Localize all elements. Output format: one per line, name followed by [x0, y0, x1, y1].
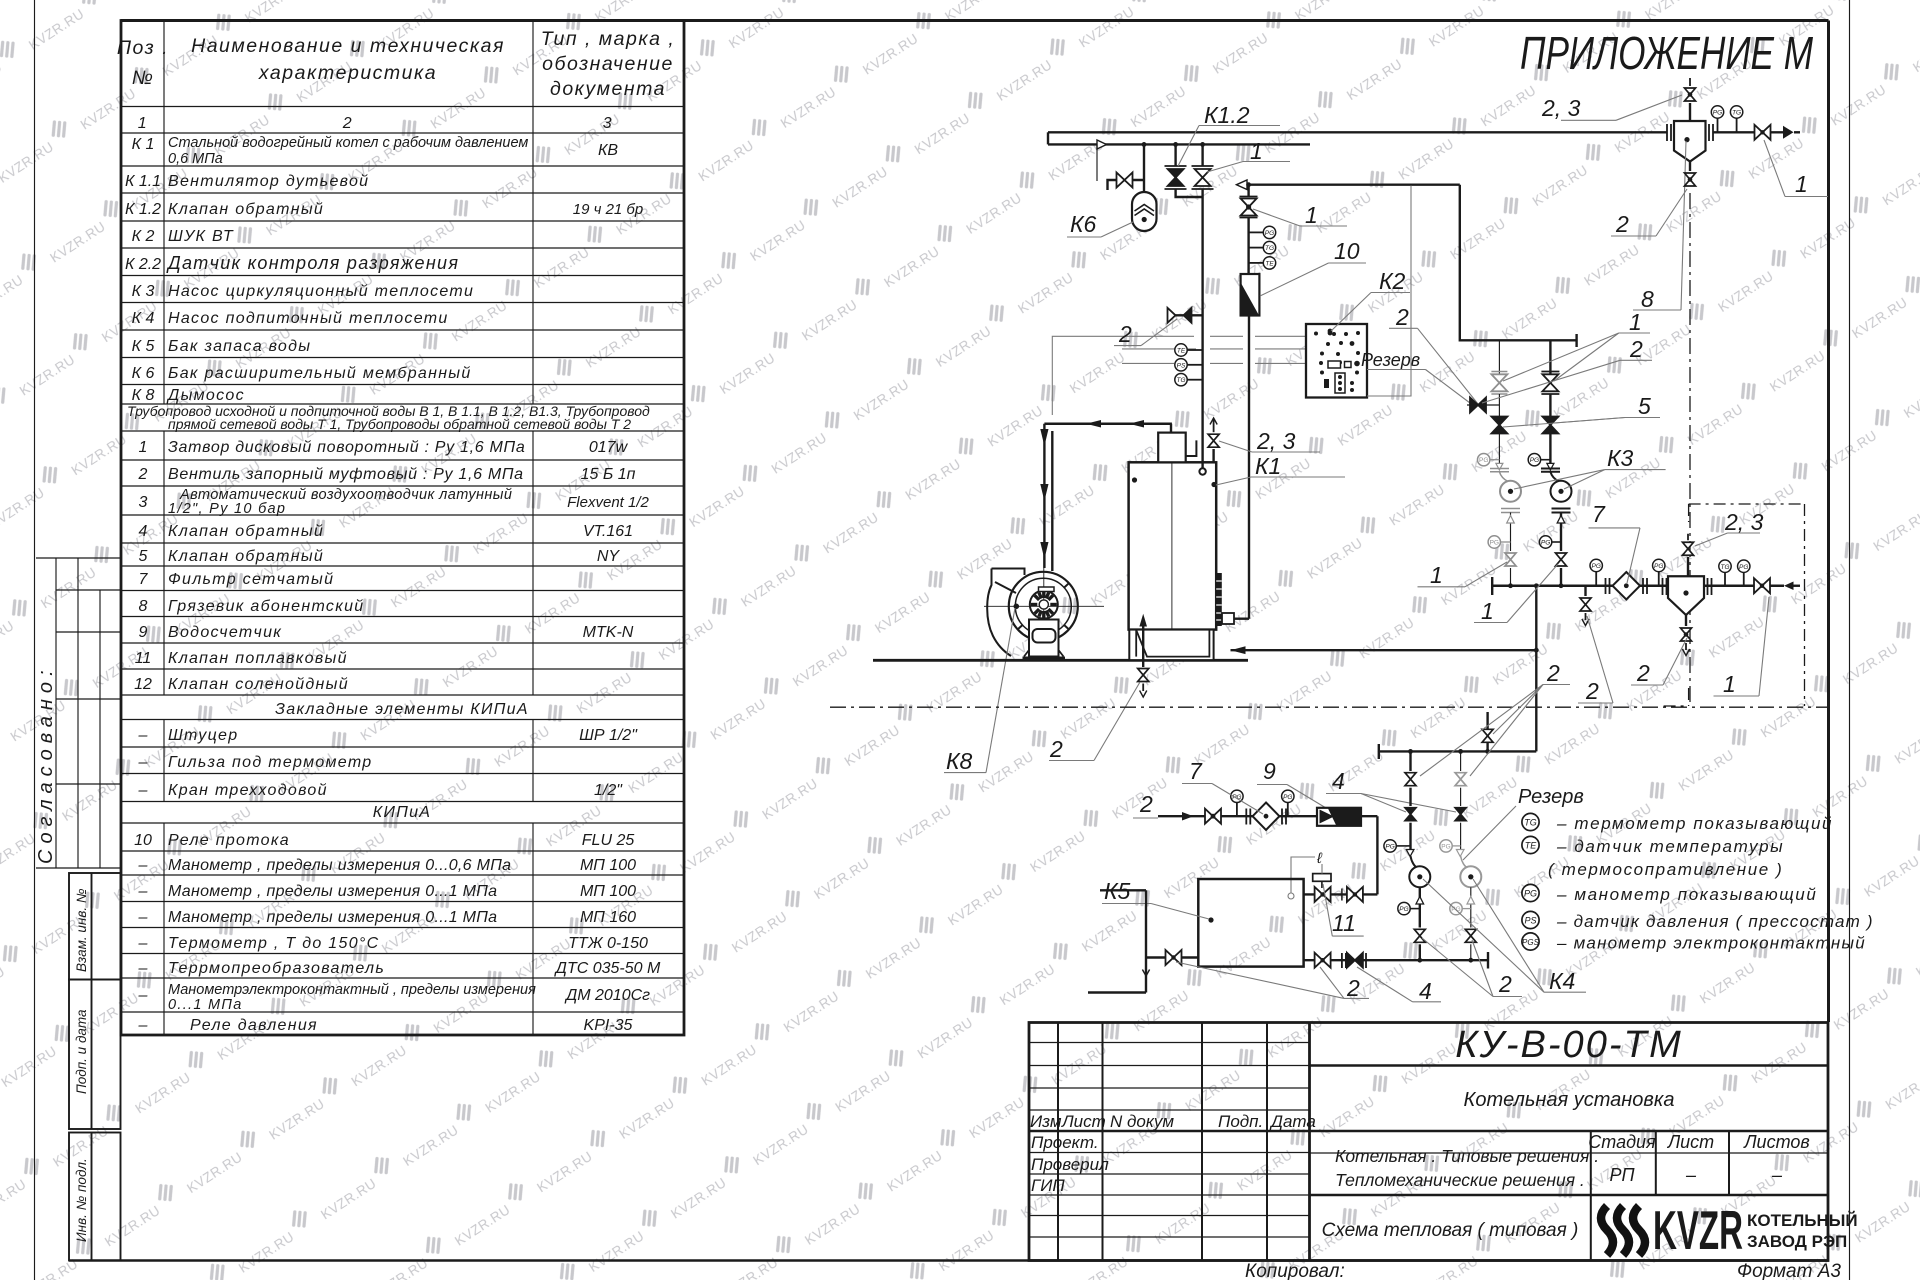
- svg-text:PG: PG: [1713, 110, 1722, 117]
- svg-text:ГИП: ГИП: [1031, 1176, 1065, 1195]
- svg-text:– термометр показывающий: – термометр показывающий: [1556, 814, 1833, 833]
- svg-text:№: №: [132, 67, 155, 89]
- svg-text:1/2": 1/2": [594, 782, 623, 799]
- svg-text:2: 2: [1615, 211, 1629, 237]
- svg-text:1: 1: [1795, 171, 1808, 197]
- svg-text:VT.161: VT.161: [583, 523, 633, 540]
- svg-text:PG: PG: [1479, 457, 1488, 464]
- svg-text:5: 5: [139, 548, 148, 565]
- svg-text:К 1.1: К 1.1: [125, 173, 161, 190]
- svg-text:PG: PG: [1530, 457, 1539, 464]
- svg-text:8: 8: [139, 598, 148, 615]
- svg-text:–: –: [138, 960, 148, 977]
- svg-text:TG: TG: [1265, 245, 1274, 252]
- svg-text:2: 2: [1585, 678, 1599, 704]
- svg-text:Котельная установка: Котельная установка: [1464, 1089, 1675, 1111]
- svg-text:Лист: Лист: [1061, 1112, 1106, 1131]
- svg-text:Вентилятор дутьевой: Вентилятор дутьевой: [168, 173, 369, 190]
- svg-text:PS: PS: [1177, 362, 1186, 369]
- svg-text:0...1 МПа: 0...1 МПа: [168, 997, 243, 1013]
- svg-text:2: 2: [1629, 336, 1643, 362]
- svg-text:Бак запаса воды: Бак запаса воды: [168, 338, 311, 355]
- svg-text:3: 3: [139, 494, 148, 511]
- svg-text:–: –: [138, 883, 148, 900]
- svg-text:К2: К2: [1379, 268, 1406, 294]
- svg-text:7: 7: [139, 571, 149, 588]
- svg-text:PG: PG: [1591, 563, 1600, 570]
- svg-text:2: 2: [1546, 660, 1560, 686]
- svg-text:Датчик контроля разряжения: Датчик контроля разряжения: [166, 253, 459, 273]
- svg-text:К 3: К 3: [132, 283, 155, 300]
- svg-text:PS: PS: [1524, 916, 1536, 926]
- svg-text:–: –: [138, 754, 148, 771]
- svg-text:ПРИЛОЖЕНИЕ М: ПРИЛОЖЕНИЕ М: [1520, 27, 1814, 79]
- svg-text:Взам. инв. №: Взам. инв. №: [74, 888, 89, 972]
- svg-text:обозначение: обозначение: [542, 53, 674, 75]
- svg-text:PG: PG: [1524, 889, 1537, 899]
- svg-text:К6: К6: [1070, 211, 1097, 237]
- svg-text:–: –: [138, 782, 148, 799]
- svg-text:Формат А3: Формат А3: [1737, 1261, 1841, 1280]
- svg-text:Реле давления: Реле давления: [190, 1017, 318, 1034]
- svg-text:NY: NY: [597, 548, 621, 565]
- svg-text:К 5: К 5: [132, 338, 155, 355]
- svg-text:Насос подпиточный теплосети: Насос подпиточный теплосети: [168, 310, 449, 327]
- svg-text:Подп. и дата: Подп. и дата: [74, 1009, 89, 1094]
- svg-text:3: 3: [603, 115, 613, 132]
- svg-text:РП: РП: [1609, 1165, 1635, 1185]
- svg-text:9: 9: [1263, 758, 1276, 784]
- svg-text:TG: TG: [1524, 818, 1537, 828]
- svg-text:Клапан поплавковый: Клапан поплавковый: [168, 650, 348, 667]
- svg-text:Клапан обратный: Клапан обратный: [168, 548, 324, 565]
- svg-text:1: 1: [139, 439, 148, 456]
- svg-text:2, 3: 2, 3: [1724, 509, 1764, 535]
- svg-text:К 1: К 1: [132, 136, 155, 153]
- svg-text:2: 2: [138, 466, 148, 483]
- svg-text:Подп.: Подп.: [1218, 1112, 1263, 1131]
- svg-text:2: 2: [1395, 304, 1409, 330]
- svg-text:– манометр показывающий: – манометр показывающий: [1556, 885, 1817, 904]
- svg-text:TG: TG: [1732, 110, 1741, 117]
- svg-text:7: 7: [1592, 501, 1606, 527]
- svg-text:PG: PG: [1385, 843, 1394, 850]
- svg-text:0,6 МПа: 0,6 МПа: [168, 151, 223, 167]
- svg-text:10: 10: [1334, 238, 1360, 264]
- svg-text:Лист: Лист: [1667, 1132, 1714, 1152]
- svg-text:FLU 25: FLU 25: [582, 832, 635, 849]
- svg-text:2: 2: [1498, 971, 1512, 997]
- svg-text:К4: К4: [1549, 968, 1575, 994]
- svg-text:Копировал:: Копировал:: [1245, 1261, 1345, 1280]
- svg-text:Грязевик абонентский: Грязевик абонентский: [168, 598, 364, 615]
- svg-text:KPI-35: KPI-35: [584, 1017, 633, 1034]
- svg-text:PG: PG: [1265, 230, 1274, 237]
- svg-text:Клапан обратный: Клапан обратный: [168, 523, 324, 540]
- svg-text:2, 3: 2, 3: [1541, 95, 1581, 121]
- svg-text:К1: К1: [1255, 453, 1281, 479]
- svg-text:–: –: [138, 727, 148, 744]
- svg-text:К1.2: К1.2: [1204, 102, 1250, 128]
- svg-text:TE: TE: [1265, 260, 1274, 267]
- svg-text:–: –: [138, 909, 148, 926]
- svg-text:TE: TE: [1177, 348, 1186, 355]
- svg-text:MTK-N: MTK-N: [583, 624, 634, 641]
- svg-text:PG: PG: [1490, 540, 1499, 547]
- svg-text:1: 1: [1723, 671, 1736, 697]
- svg-text:Кран трехходовой: Кран трехходовой: [168, 782, 328, 799]
- svg-text:1: 1: [138, 115, 148, 132]
- svg-text:Инв. № подл.: Инв. № подл.: [74, 1158, 89, 1242]
- svg-text:017w: 017w: [589, 439, 629, 456]
- svg-text:1: 1: [1430, 562, 1443, 588]
- svg-text:ДТС 035-50 М: ДТС 035-50 М: [554, 960, 661, 977]
- svg-text:Стадия: Стадия: [1588, 1132, 1656, 1152]
- svg-text:12: 12: [134, 676, 152, 693]
- svg-text:PGS: PGS: [1522, 938, 1540, 947]
- svg-text:КОТЕЛЬНЫЙ: КОТЕЛЬНЫЙ: [1747, 1211, 1858, 1230]
- svg-text:Закладные элементы КИПиА: Закладные элементы КИПиА: [275, 701, 529, 718]
- svg-text:2: 2: [1636, 660, 1650, 686]
- svg-text:11: 11: [135, 650, 152, 667]
- svg-text:К 4: К 4: [132, 310, 155, 327]
- svg-text:Насос циркуляционный теплосети: Насос циркуляционный теплосети: [168, 283, 474, 300]
- svg-text:19 ч 21 бр: 19 ч 21 бр: [573, 201, 643, 218]
- svg-text:К 1.2: К 1.2: [125, 201, 161, 218]
- svg-text:1/2", Ру 10 бар: 1/2", Ру 10 бар: [168, 501, 286, 517]
- svg-text:N докум: N докум: [1110, 1112, 1174, 1131]
- svg-text:–: –: [138, 987, 148, 1004]
- svg-text:МП 100: МП 100: [580, 883, 636, 900]
- svg-text:ШУК ВТ: ШУК ВТ: [168, 228, 234, 245]
- svg-text:ШР 1/2": ШР 1/2": [579, 727, 638, 744]
- svg-text:2: 2: [1118, 321, 1132, 347]
- svg-text:МП 160: МП 160: [580, 909, 636, 926]
- svg-text:КВ: КВ: [598, 142, 618, 159]
- svg-text:К 6: К 6: [132, 365, 155, 382]
- svg-text:PG: PG: [1441, 843, 1450, 850]
- svg-text:PG: PG: [1654, 563, 1663, 570]
- svg-text:Бак расширительный мембранный: Бак расширительный мембранный: [168, 365, 472, 382]
- svg-text:–: –: [1685, 1165, 1697, 1185]
- svg-text:10: 10: [134, 832, 152, 849]
- svg-text:Клапан обратный: Клапан обратный: [168, 201, 324, 218]
- svg-text:КУ-В-00-ТМ: КУ-В-00-ТМ: [1455, 1024, 1683, 1066]
- svg-text:Поз .: Поз .: [117, 37, 169, 59]
- svg-text:4: 4: [1419, 978, 1432, 1004]
- svg-text:PG: PG: [1283, 794, 1292, 801]
- svg-text:8: 8: [1641, 286, 1654, 312]
- svg-text:2: 2: [342, 115, 353, 132]
- svg-text:PG: PG: [1541, 540, 1550, 547]
- svg-text:Листов: Листов: [1743, 1132, 1810, 1152]
- svg-text:Террмопреобразователь: Террмопреобразователь: [168, 960, 385, 977]
- svg-text:Наименование и техническая: Наименование и техническая: [191, 35, 505, 57]
- svg-text:К 8: К 8: [132, 387, 155, 404]
- svg-text:Дата: Дата: [1269, 1112, 1316, 1131]
- svg-text:документа: документа: [550, 78, 666, 100]
- svg-text:ТТЖ 0-150: ТТЖ 0-150: [568, 935, 648, 952]
- svg-text:–: –: [138, 935, 148, 952]
- svg-text:Изм: Изм: [1030, 1112, 1062, 1131]
- svg-text:PG: PG: [1739, 564, 1748, 571]
- svg-text:2: 2: [1139, 791, 1153, 817]
- svg-text:PG: PG: [1399, 906, 1408, 913]
- svg-text:Манометр , пределы измерения: Манометр , пределы измерения 0...1 МПа: [168, 883, 497, 900]
- svg-text:Клапан соленойдный: Клапан соленойдный: [168, 676, 349, 693]
- svg-text:К 2: К 2: [132, 228, 155, 245]
- svg-text:К 2.2: К 2.2: [125, 256, 161, 273]
- svg-text:К8: К8: [946, 748, 973, 774]
- svg-text:Котельная . Типовые решения .: Котельная . Типовые решения .: [1335, 1146, 1599, 1166]
- svg-text:МП 100: МП 100: [580, 857, 636, 874]
- svg-text:КИПиА: КИПиА: [373, 804, 432, 821]
- svg-text:Фильтр сетчатый: Фильтр сетчатый: [168, 571, 334, 588]
- svg-text:Манометр , пределы измерения: Манометр , пределы измерения 0...0,6 МПа: [168, 857, 511, 874]
- svg-text:Схема тепловая ( типовая ): Схема тепловая ( типовая ): [1322, 1220, 1579, 1241]
- svg-text:9: 9: [139, 624, 148, 641]
- svg-text:Вентиль запорный муфтовый : Р: Вентиль запорный муфтовый : Ру 1,6 МПа: [168, 466, 524, 483]
- svg-text:Манометр , пределы измерения: Манометр , пределы измерения 0...1 МПа: [168, 909, 497, 926]
- svg-text:– датчик давления ( прессост: – датчик давления ( прессостат ): [1556, 912, 1874, 931]
- svg-text:Согласовано:: Согласовано:: [35, 664, 57, 864]
- svg-text:2: 2: [1049, 736, 1063, 762]
- svg-text:Затвор дисковый поворотный :: Затвор дисковый поворотный : Ру 1,6 МПа: [168, 439, 525, 456]
- svg-text:( термосопративление ): ( термосопративление ): [1548, 860, 1783, 879]
- svg-text:TG: TG: [1720, 564, 1729, 571]
- svg-text:1: 1: [1481, 598, 1494, 624]
- svg-text:Тепломеханические решения .: Тепломеханические решения .: [1335, 1170, 1585, 1190]
- svg-text:4: 4: [1332, 768, 1345, 794]
- svg-text:4: 4: [139, 523, 148, 540]
- svg-text:TE: TE: [1525, 841, 1537, 851]
- svg-text:Реле протока: Реле протока: [168, 832, 290, 849]
- svg-text:7: 7: [1189, 758, 1203, 784]
- svg-text:Дымосос: Дымосос: [166, 387, 245, 404]
- svg-text:11: 11: [1332, 910, 1356, 936]
- svg-text:15 Б 1п: 15 Б 1п: [581, 466, 636, 483]
- svg-text:5: 5: [1638, 393, 1651, 419]
- svg-text:Проект.: Проект.: [1031, 1133, 1099, 1152]
- svg-text:Резерв: Резерв: [1518, 786, 1584, 808]
- svg-text:ДМ 2010Сг: ДМ 2010Сг: [564, 987, 650, 1004]
- svg-text:Проверил: Проверил: [1031, 1155, 1109, 1174]
- svg-text:1: 1: [1250, 138, 1263, 164]
- svg-text:–: –: [138, 1017, 148, 1034]
- svg-text:характеристика: характеристика: [258, 62, 437, 84]
- svg-text:Штуцер: Штуцер: [168, 727, 238, 744]
- svg-text:Flexvent 1/2: Flexvent 1/2: [567, 494, 649, 511]
- svg-text:–: –: [1771, 1165, 1783, 1185]
- svg-text:Термометр , Т до 150°С: Термометр , Т до 150°С: [168, 935, 379, 952]
- svg-text:Тип , марка ,: Тип , марка ,: [541, 28, 676, 50]
- svg-text:ЗАВОД РЭП: ЗАВОД РЭП: [1747, 1232, 1847, 1251]
- svg-text:2: 2: [1346, 975, 1360, 1001]
- svg-text:Манометрэлектроконтактный , п: Манометрэлектроконтактный , пределы изме…: [168, 982, 536, 998]
- svg-text:1: 1: [1305, 202, 1318, 228]
- svg-text:прямой сетевой воды Т 1, Тру: прямой сетевой воды Т 1, Трубопроводы об…: [168, 416, 631, 432]
- svg-text:– датчик температуры: – датчик температуры: [1556, 837, 1784, 856]
- svg-text:К3: К3: [1607, 445, 1634, 471]
- svg-text:Гильза под термометр: Гильза под термометр: [168, 754, 372, 771]
- svg-text:2, 3: 2, 3: [1256, 428, 1296, 454]
- svg-text:1: 1: [1629, 309, 1642, 335]
- svg-text:– манометр электроконтактный: – манометр электроконтактный: [1556, 934, 1866, 953]
- svg-text:KVZR: KVZR: [1653, 1199, 1743, 1261]
- svg-text:TG: TG: [1176, 377, 1185, 384]
- svg-text:–: –: [138, 857, 148, 874]
- svg-text:Водосчетчик: Водосчетчик: [168, 624, 282, 641]
- svg-text:Стальной водогрейный котел с р: Стальной водогрейный котел с рабочим дав…: [168, 135, 528, 151]
